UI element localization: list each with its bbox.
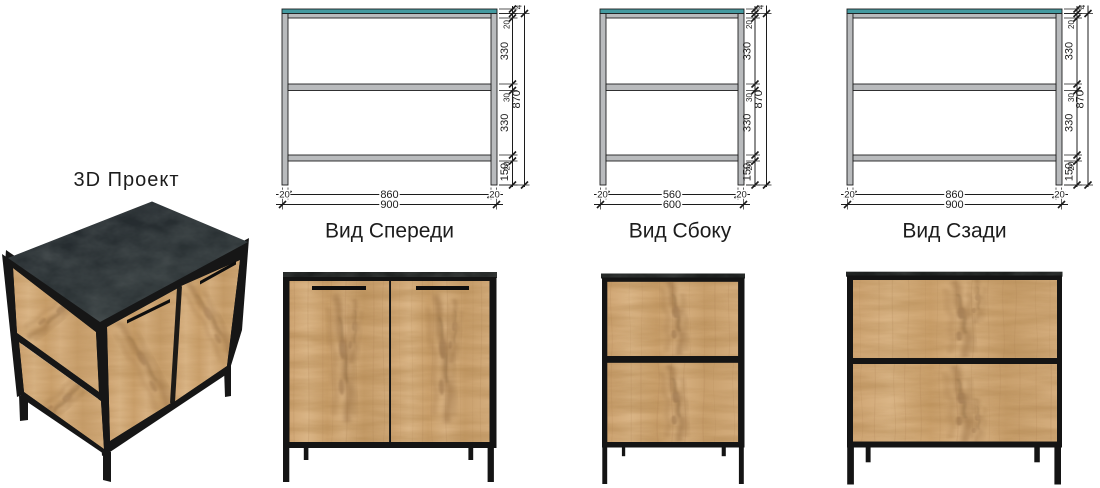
svg-text:20: 20 xyxy=(279,189,290,200)
svg-text:4: 4 xyxy=(757,4,766,9)
svg-text:330: 330 xyxy=(1064,114,1076,132)
svg-text:600: 600 xyxy=(663,199,681,211)
svg-text:30: 30 xyxy=(503,93,512,102)
svg-text:20: 20 xyxy=(745,161,754,170)
svg-text:20: 20 xyxy=(1067,161,1076,170)
svg-text:4: 4 xyxy=(1078,4,1087,9)
svg-text:900: 900 xyxy=(380,199,398,211)
svg-text:330: 330 xyxy=(1064,42,1076,60)
svg-text:3D Проект: 3D Проект xyxy=(73,169,179,191)
svg-text:20: 20 xyxy=(489,189,500,200)
svg-text:20: 20 xyxy=(1067,20,1076,29)
svg-text:Вид Сзади: Вид Сзади xyxy=(902,220,1006,243)
svg-text:Вид Спереди: Вид Спереди xyxy=(325,220,454,243)
svg-text:330: 330 xyxy=(742,114,754,132)
svg-text:870: 870 xyxy=(511,90,523,108)
svg-text:330: 330 xyxy=(742,42,754,60)
svg-text:20: 20 xyxy=(597,189,608,200)
svg-text:30: 30 xyxy=(745,93,754,102)
svg-text:4: 4 xyxy=(515,4,524,9)
svg-text:20: 20 xyxy=(844,189,855,200)
svg-text:900: 900 xyxy=(945,199,963,211)
svg-text:20: 20 xyxy=(503,20,512,29)
svg-text:30: 30 xyxy=(1067,93,1076,102)
svg-text:20: 20 xyxy=(1054,189,1065,200)
svg-text:870: 870 xyxy=(1075,90,1087,108)
svg-text:20: 20 xyxy=(736,189,747,200)
svg-text:Вид Сбоку: Вид Сбоку xyxy=(629,220,732,243)
svg-text:20: 20 xyxy=(503,161,512,170)
svg-text:20: 20 xyxy=(745,20,754,29)
svg-text:330: 330 xyxy=(499,114,511,132)
svg-text:330: 330 xyxy=(499,42,511,60)
svg-text:870: 870 xyxy=(753,90,765,108)
